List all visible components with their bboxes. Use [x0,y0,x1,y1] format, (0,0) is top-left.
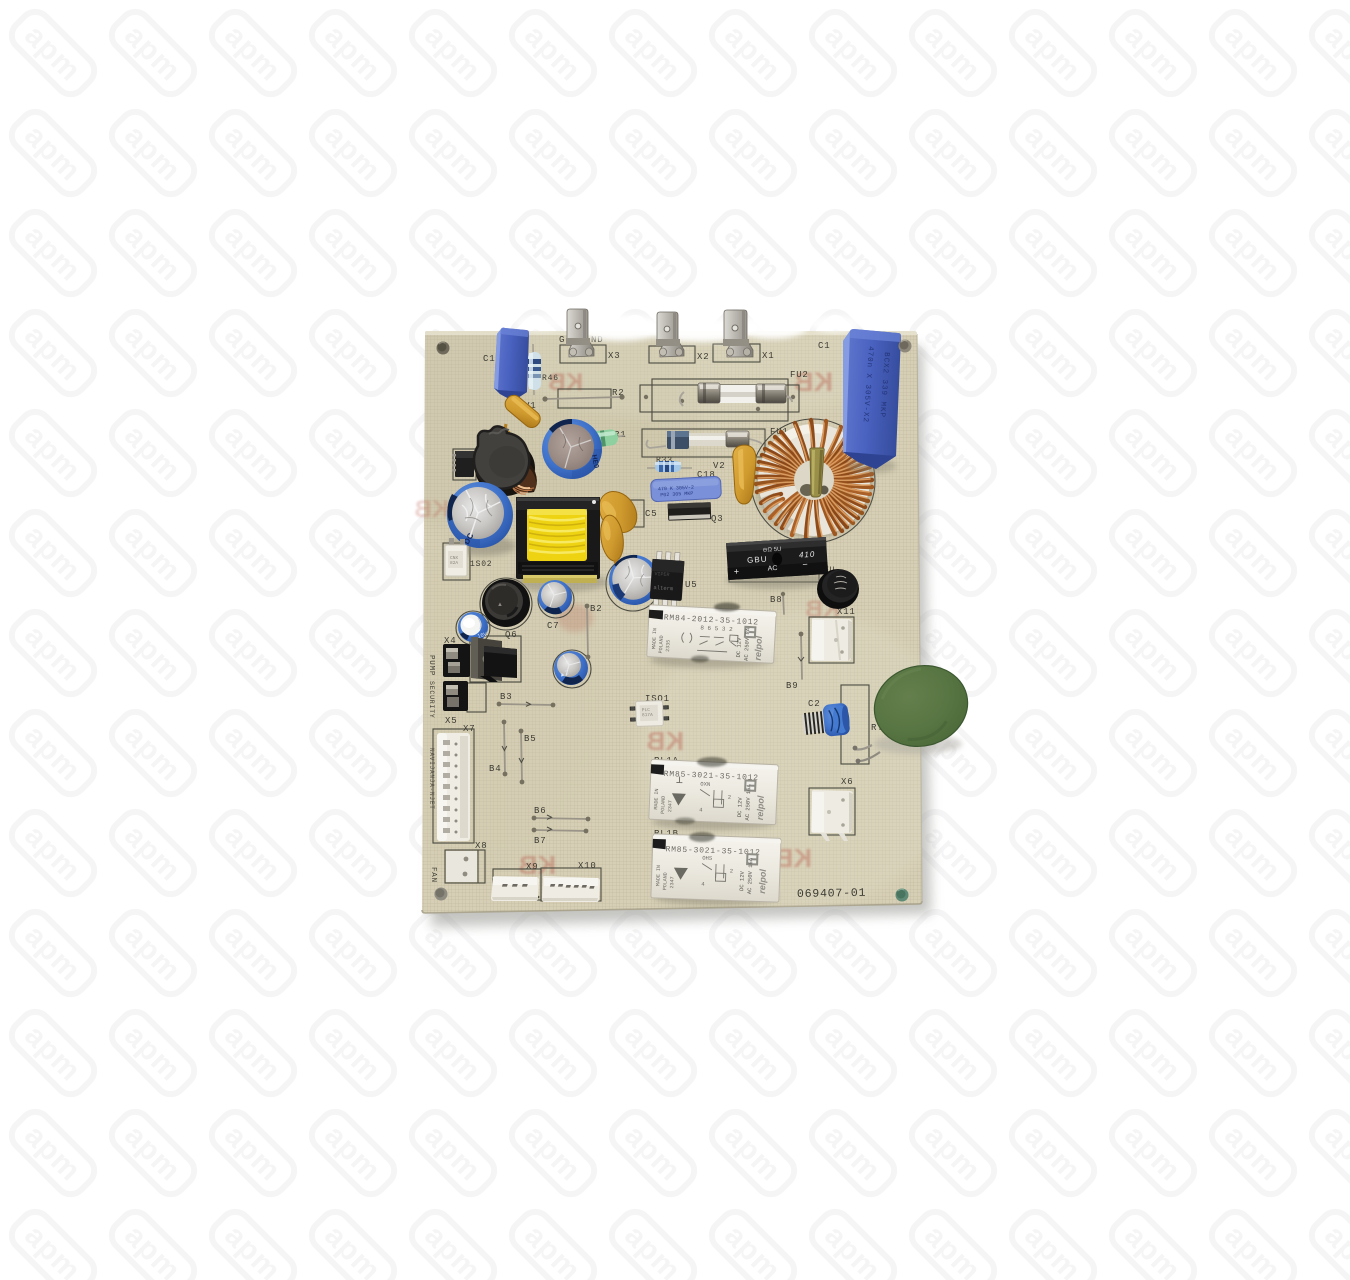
svg-text:SECURITY: SECURITY [428,681,435,719]
svg-text:relpol: relpol [757,868,768,893]
svg-text:MADE IN: MADE IN [651,628,658,649]
svg-text:X7: X7 [463,724,475,734]
svg-text:X6: X6 [841,777,853,787]
svg-text:DC 12V: DC 12V [738,870,746,891]
svg-text:relpol: relpol [753,635,764,660]
svg-text:alterm: alterm [653,584,674,592]
svg-text:DC 12V: DC 12V [736,797,744,818]
svg-text:DC 12V: DC 12V [735,637,743,658]
svg-text:AC: AC [768,565,778,573]
svg-text:KB: KB [646,726,684,756]
svg-text:2347: 2347 [669,876,675,888]
svg-text:X5: X5 [445,716,457,726]
svg-text:82A: 82A [450,560,458,566]
svg-text:069407-01: 069407-01 [797,887,867,901]
svg-text:POLAND: POLAND [658,635,665,653]
svg-text:2: 2 [728,794,732,801]
svg-text:R46: R46 [542,374,559,383]
svg-text:C1: C1 [483,354,495,364]
svg-text:OHS: OHS [702,855,713,862]
svg-text:X3: X3 [608,351,620,361]
svg-text:B6: B6 [534,806,546,816]
svg-text:KB: KB [414,496,449,523]
svg-text:X9: X9 [526,862,538,872]
svg-text:GBU: GBU [747,555,768,565]
svg-text:B7: B7 [534,836,546,846]
svg-text:▲: ▲ [497,602,503,608]
svg-text:B8: B8 [770,595,782,605]
svg-text:410: 410 [799,550,816,560]
svg-text:C1: C1 [818,341,830,351]
svg-text:X1: X1 [762,351,774,361]
svg-text:PUMP: PUMP [427,655,435,676]
svg-text:C5: C5 [645,509,657,519]
svg-text:C7: C7 [547,621,559,631]
svg-text:2335: 2335 [665,640,672,652]
svg-text:X10: X10 [578,861,597,871]
svg-text:relpol: relpol [755,795,766,820]
svg-text:B2: B2 [590,604,602,614]
svg-text:X2: X2 [697,352,709,362]
svg-text:⊖Ω 5U: ⊖Ω 5U [762,547,781,554]
svg-text:C2: C2 [808,699,820,709]
svg-text:U5: U5 [685,580,697,590]
svg-text:B3: B3 [500,692,512,702]
svg-text:X8: X8 [475,841,487,851]
svg-text:FAN: FAN [429,867,437,883]
svg-text:POLAND: POLAND [662,872,669,890]
svg-text:MADE IN: MADE IN [653,788,660,809]
svg-text:2: 2 [730,868,734,875]
svg-text:+: + [734,566,740,576]
svg-text:G: G [559,335,565,345]
svg-text:B9: B9 [786,681,798,691]
svg-text:MADE IN: MADE IN [655,865,662,886]
svg-text:1S02: 1S02 [470,560,492,569]
svg-text:Q6: Q6 [505,630,517,640]
svg-text:OXN: OXN [700,780,710,787]
svg-text:R2: R2 [612,388,624,398]
svg-text:B5: B5 [524,734,536,744]
svg-text:VIPER: VIPER [654,571,669,578]
svg-text:817A: 817A [642,712,653,718]
svg-text:AC 250V 16A: AC 250V 16A [746,857,754,894]
svg-text:POLAND: POLAND [660,796,667,814]
svg-text:FU2: FU2 [790,370,809,380]
svg-text:B4: B4 [489,764,501,774]
svg-text:Q3: Q3 [711,514,723,524]
svg-text:NAVIJANJA-NJET: NAVIJANJA-NJET [428,748,435,810]
svg-text:2347: 2347 [667,800,674,812]
svg-text:−: − [802,559,808,569]
